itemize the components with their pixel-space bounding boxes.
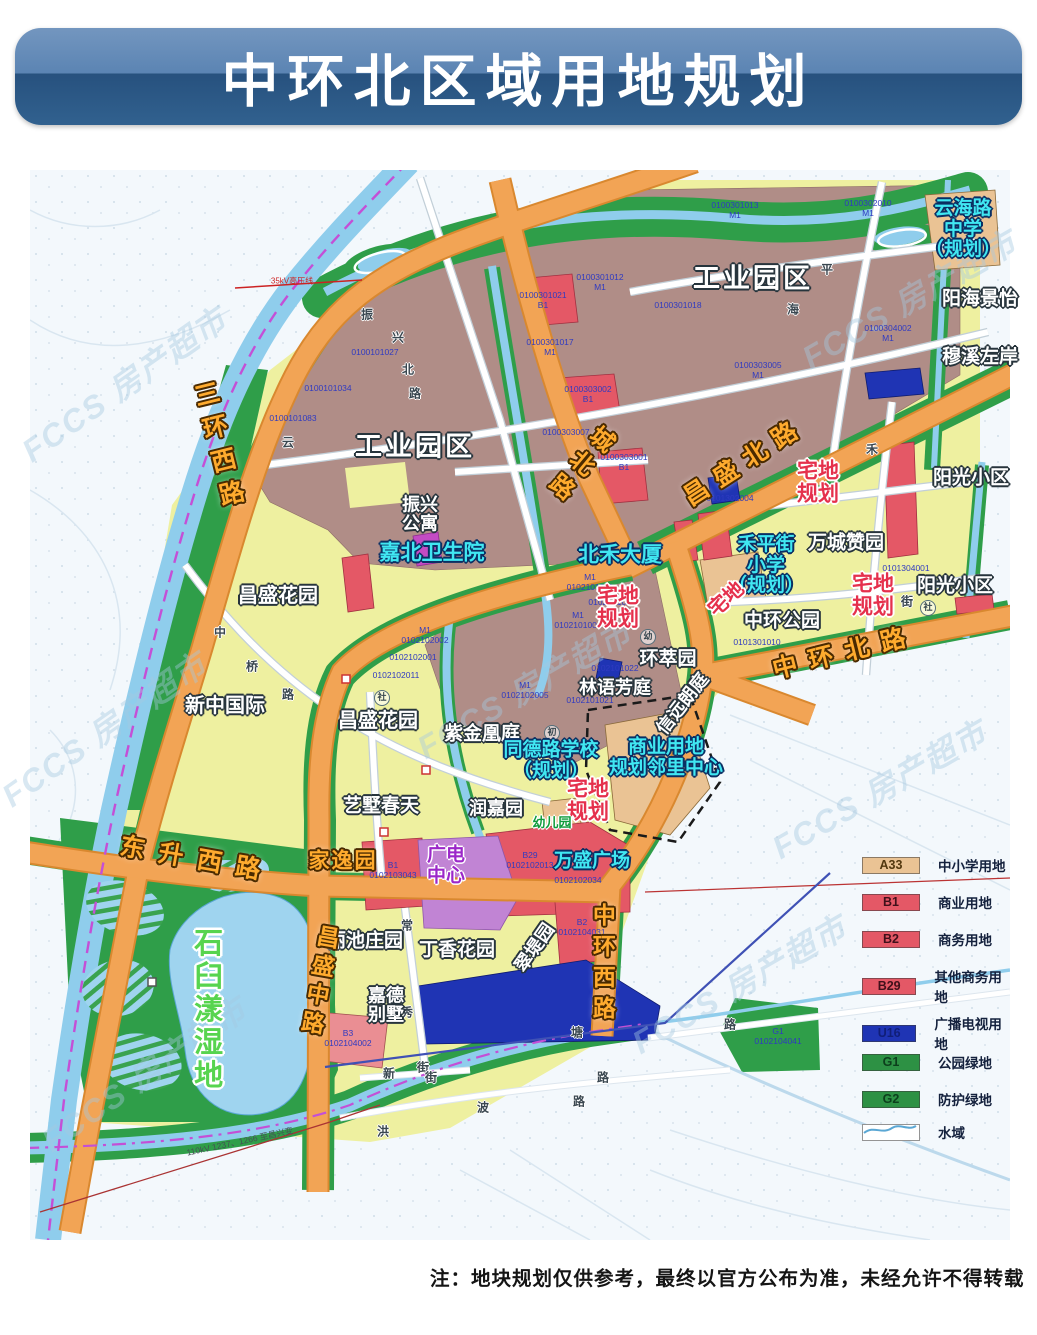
title-banner: 中环北区域用地规划 <box>15 28 1022 125</box>
disclaimer-note: 注：地块规划仅供参考，最终以官方公布为准，未经允许不得转载 <box>430 1262 1025 1291</box>
planning-map: FCCS 房产超市FCCS 房产超市FCCS 房产超市FCCS 房产超市FCCS… <box>30 170 1010 1240</box>
map-canvas <box>30 170 1010 1240</box>
parcel-hospital-magenta <box>413 532 442 566</box>
page: 中环北区域用地规划 <box>0 0 1037 1335</box>
parcel-zhenxing-yellow <box>345 462 410 508</box>
parcel-yunhailu-school <box>925 190 1000 270</box>
page-title: 中环北区域用地规划 <box>222 36 816 118</box>
